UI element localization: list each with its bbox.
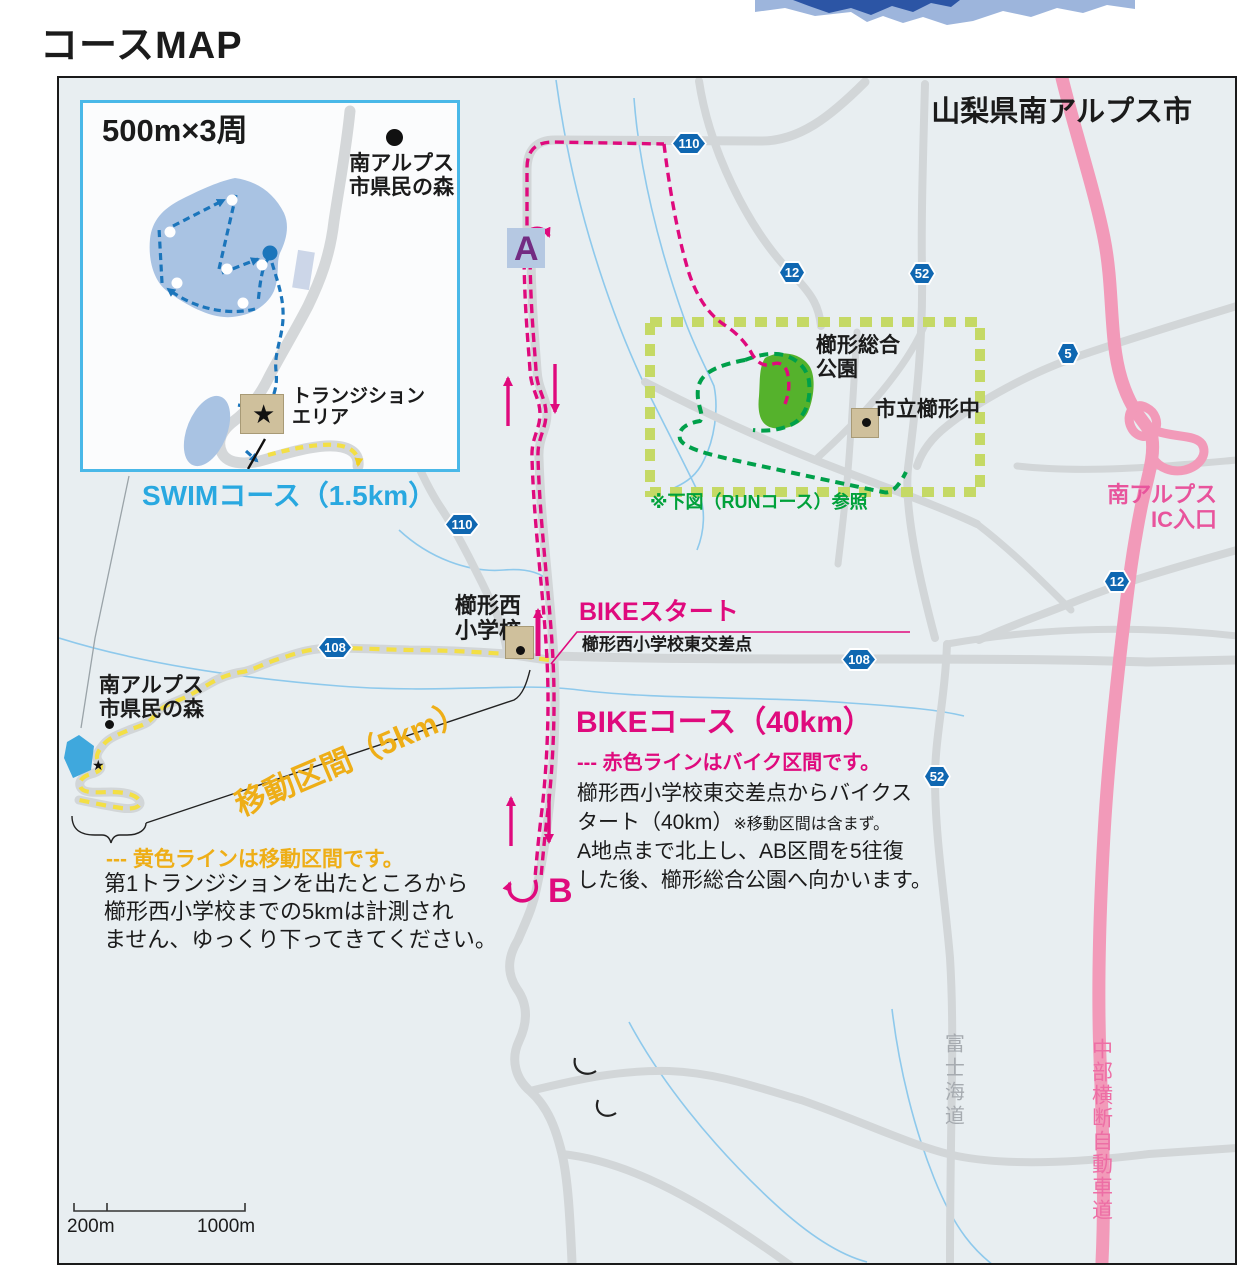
route-badge-108-west: 108: [317, 636, 353, 659]
route-badge-5: 5: [1056, 342, 1080, 365]
forest-label: 南アルプス市県民の森: [99, 674, 204, 721]
route-badge-52-south: 52: [923, 765, 951, 788]
scale-bar: [74, 1203, 245, 1211]
inset-laps-label: 500m×3周: [102, 114, 248, 149]
bike-desc-line4: した後、櫛形総合公園へ向かいます。: [577, 869, 932, 893]
route-badge-110-west: 110: [444, 513, 480, 536]
bike-course-legend: --- 赤色ラインはバイク区間です。: [577, 752, 880, 774]
ic-entrance-label: 南アルプスIC入口: [1067, 483, 1217, 532]
mountain-silhouette-decoration: [755, 0, 1135, 26]
region-label: 山梨県南アルプス市: [892, 96, 1192, 128]
swim-course-title: SWIMコース（1.5km）: [142, 480, 436, 511]
bike-desc-line2: タート（40km）※移動区間は含まず。: [577, 811, 889, 835]
scale-large-label: 1000m: [197, 1216, 255, 1237]
bike-desc-line1: 櫛形西小学校東交差点からバイクス: [577, 782, 912, 806]
junior-high-label: 市立櫛形中: [875, 398, 980, 422]
expressway-road: [1062, 78, 1204, 1262]
tunnel-marks: [575, 1058, 616, 1116]
inset-forest-dot: [386, 129, 403, 146]
run-course-note: ※下図（RUNコース）参照: [650, 492, 868, 512]
transition-star-icon: ★: [252, 400, 275, 429]
map-canvas: 500m×3周 南アルプス市県民の森 ★ トランジションエリア SWIMコース（…: [57, 76, 1237, 1265]
bike-desc-line3: A地点まで北上し、AB区間を5往復: [577, 840, 904, 864]
point-b-marker: B: [548, 872, 573, 910]
scale-small-label: 200m: [67, 1216, 115, 1237]
course-map-page: コースMAP: [0, 0, 1255, 1280]
transfer-desc-line2: 櫛形西小学校までの5kmは計測され: [104, 900, 454, 925]
route-badge-110-north: 110: [671, 132, 707, 155]
forest-star-icon: ★: [92, 758, 105, 774]
transfer-legend: --- 黄色ラインは移動区間です。: [106, 848, 404, 872]
expressway-label: 中部横断自動車道: [1089, 1038, 1113, 1222]
bike-start-sublabel: 櫛形西小学校東交差点: [582, 635, 752, 654]
route-badge-12-north: 12: [778, 261, 806, 284]
junior-high-dot: [862, 418, 871, 427]
school-dot: [516, 646, 525, 655]
bike-start-label: BIKEスタート: [579, 598, 739, 626]
swim-start-buoy: [263, 246, 278, 261]
mountain-silhouette-art: [755, 0, 1135, 26]
route-badge-12-east: 12: [1103, 570, 1131, 593]
page-title: コースMAP: [40, 14, 243, 69]
route-badge-52-north: 52: [908, 262, 936, 285]
transition-area-label: トランジションエリア: [292, 386, 425, 429]
point-a-marker: A: [514, 230, 539, 268]
fuji-road-label: 富士海道: [941, 1033, 963, 1129]
bike-desc-note: ※移動区間は含まず。: [733, 816, 889, 833]
park-label: 櫛形総合公園: [816, 334, 900, 381]
route-badge-108-east: 108: [841, 648, 877, 671]
bike-course-title: BIKEコース（40km）: [576, 706, 873, 740]
transfer-desc-line1: 第1トランジションを出たところから: [104, 872, 468, 897]
inset-forest-label: 南アルプス市県民の森: [299, 152, 454, 199]
transfer-desc-line3: ません、ゆっくり下ってきてください。: [104, 928, 497, 953]
forest-dot: [105, 720, 114, 729]
